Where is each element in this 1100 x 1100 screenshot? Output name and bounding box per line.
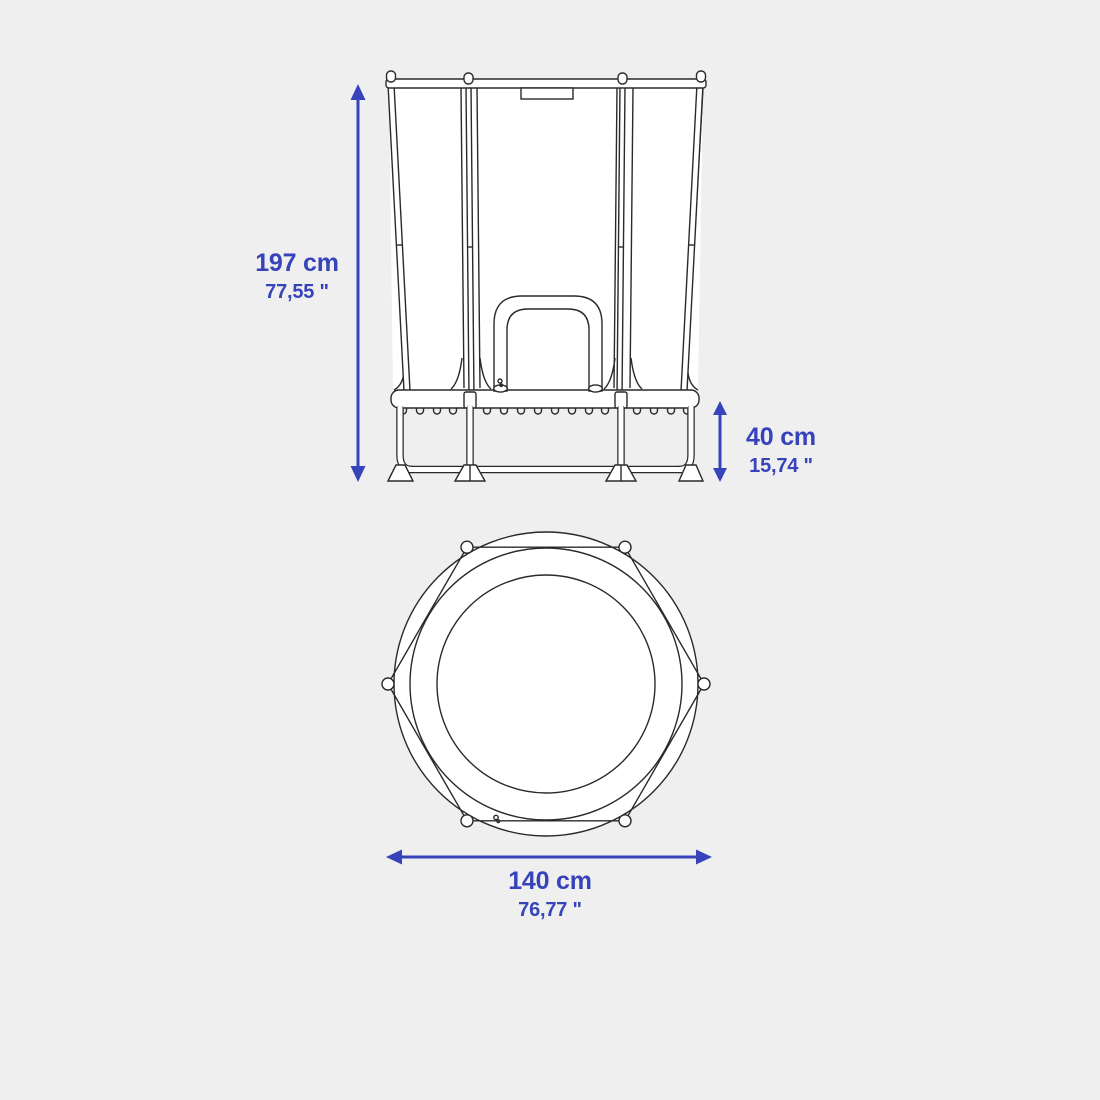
diameter-dimension-arrow [386,850,712,865]
pole-cap-icon [618,73,627,84]
pole-cap-icon [461,541,473,553]
trampoline-front-view [386,71,706,481]
frame-height-metric-value: 40 cm [746,424,816,451]
frame-height-dimension-arrow [713,401,727,482]
pole-cap-icon [697,71,706,82]
diameter-metric-value: 140 cm [508,868,592,895]
frame-legs [388,408,703,482]
spring-hooks [400,408,691,414]
safety-net-panel [389,83,703,391]
frame-height-dimension-label: 40 cm 15,74 " [746,424,816,478]
diagram-canvas [0,0,1100,1100]
pole-cap-icon [698,678,710,690]
pole-cap-icon [461,815,473,827]
frame-pad [391,390,699,408]
height-imperial-value: 77,55 " [255,280,339,304]
pole-cap-icon [387,71,396,82]
height-metric-value: 197 cm [255,250,339,277]
pole-cap-icon [382,678,394,690]
label-tag [521,88,573,99]
diameter-imperial-value: 76,77 " [508,898,592,922]
trampoline-top-view [382,532,710,836]
pole-cap-icon [464,73,473,84]
height-dimension-arrow [351,84,366,482]
net-top-bar [386,79,706,88]
diameter-dimension-label: 140 cm 76,77 " [508,868,592,922]
frame-height-imperial-value: 15,74 " [746,454,816,478]
pole-cap-icon [619,815,631,827]
height-dimension-label: 197 cm 77,55 " [255,250,339,304]
pole-cap-icon [619,541,631,553]
dimension-diagram: 197 cm 77,55 " 40 cm 15,74 " 140 cm 76,7… [0,0,1100,1100]
